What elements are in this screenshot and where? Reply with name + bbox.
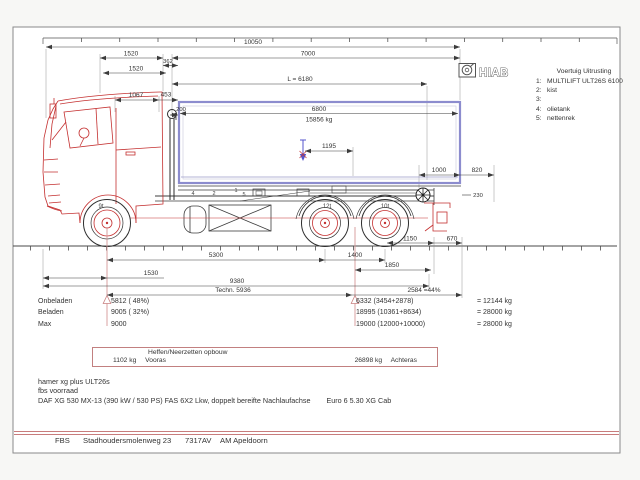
dim-total-length: 10050 [244, 39, 262, 46]
equipment-item: 5:nettenrek [536, 114, 632, 123]
dim-230: 230 [473, 193, 483, 199]
equipment-list: Voertuig Uitrusting 1:MULTILIFT ULT26S 6… [536, 67, 632, 123]
dim-7000: 7000 [301, 51, 316, 58]
row-label: Beladen [38, 307, 111, 318]
vehicle-notes: hamer xg plus ULT26s fbs voorraad DAF XG… [38, 377, 391, 405]
dim-1000: 1000 [432, 167, 447, 174]
equipment-item: 3: [536, 95, 632, 104]
equipment-item: 2:kist [536, 86, 632, 95]
total-load: = 12144 kg [477, 296, 539, 307]
technical-drawing-page: 4 2 1 5 [0, 0, 640, 480]
dim-front-overhang: 1530 [144, 270, 159, 277]
axle-load-front: 9t [98, 204, 103, 210]
dim-rear-pct: 2584 =44% [407, 287, 440, 294]
accent-line [14, 431, 619, 432]
footer-city: AM Apeldoorn [220, 436, 268, 445]
accent-line [14, 434, 619, 435]
dim-820: 820 [472, 167, 483, 174]
lift-front-axle: 1102 kg Vooras [113, 357, 166, 364]
equipment-item: 4:olietank [536, 105, 632, 114]
lift-setdown-box: Heffen/Neerzetten opbouw 1102 kg Vooras … [92, 347, 438, 367]
dim-1195: 1195 [322, 143, 336, 150]
item-number-4: 4 [191, 191, 194, 197]
dim-container-length: L = 6180 [287, 76, 313, 83]
rear-roller [416, 188, 430, 202]
hiab-logo-text: HIAB [479, 68, 509, 80]
front-load: 9005 ( 32%) [111, 307, 356, 318]
dim-362: 362 [163, 59, 173, 65]
axle-load-table: Onbeladen 5812 ( 48%) 6332 (3454+2878) =… [38, 296, 539, 330]
footer-postcode: 7317AV [185, 436, 211, 445]
footer-company: FBS [55, 436, 70, 445]
dim-1520-b: 1520 [129, 65, 144, 72]
dim-axle-spread: 1400 [348, 252, 363, 259]
total-load: = 28000 kg [477, 307, 539, 318]
dim-1150: 1150 [403, 236, 417, 243]
lift-box-title: Heffen/Neerzetten opbouw [148, 349, 227, 356]
note-stock: fbs voorraad [38, 386, 391, 395]
item-number-2: 2 [212, 191, 215, 197]
footer: FBS Stadhoudersmolenweg 23 7317AV AM Ape… [0, 436, 640, 448]
dim-1520-a: 1520 [124, 51, 139, 58]
item-number-5: 5 [242, 192, 245, 198]
dim-techn-length: Techn. 5936 [215, 287, 251, 294]
axle-load-drive: 12t [323, 204, 332, 210]
dim-1067: 1067 [129, 92, 144, 99]
item-number-1: 1 [234, 188, 237, 194]
equipment-title: Voertuig Uitrusting [536, 67, 632, 76]
row-label: Max [38, 319, 111, 330]
dim-wheelbase: 5300 [209, 252, 224, 259]
footer-address: Stadhoudersmolenweg 23 [83, 436, 171, 445]
lift-rear-axle: 26898 kg Achteras [355, 357, 417, 364]
front-load: 5812 ( 48%) [111, 296, 356, 307]
dim-670: 670 [447, 236, 458, 243]
note-config: hamer xg plus ULT26s [38, 377, 391, 386]
dim-453: 453 [161, 92, 172, 99]
dim-inner-length: 6800 [312, 106, 327, 113]
front-load: 9000 [111, 319, 356, 330]
dim-payload: 15856 kg [306, 117, 333, 124]
equipment-item: 1:MULTILIFT ULT26S 6100 [536, 77, 632, 86]
rear-load: 18995 (10361+8634) [356, 307, 477, 318]
axle-load-tag: 10t [381, 204, 390, 210]
note-chassis: DAF XG 530 MX-13 (390 kW / 530 PS) FAS 6… [38, 396, 391, 405]
dim-200: 200 [176, 107, 186, 113]
dim-1850: 1850 [385, 262, 400, 269]
rear-load: 19000 (12000+10000) [356, 319, 477, 330]
dim-9380: 9380 [230, 278, 245, 285]
rear-load: 6332 (3454+2878) [356, 296, 477, 307]
row-label: Onbeladen [38, 296, 111, 307]
total-load: = 28000 kg [477, 319, 539, 330]
